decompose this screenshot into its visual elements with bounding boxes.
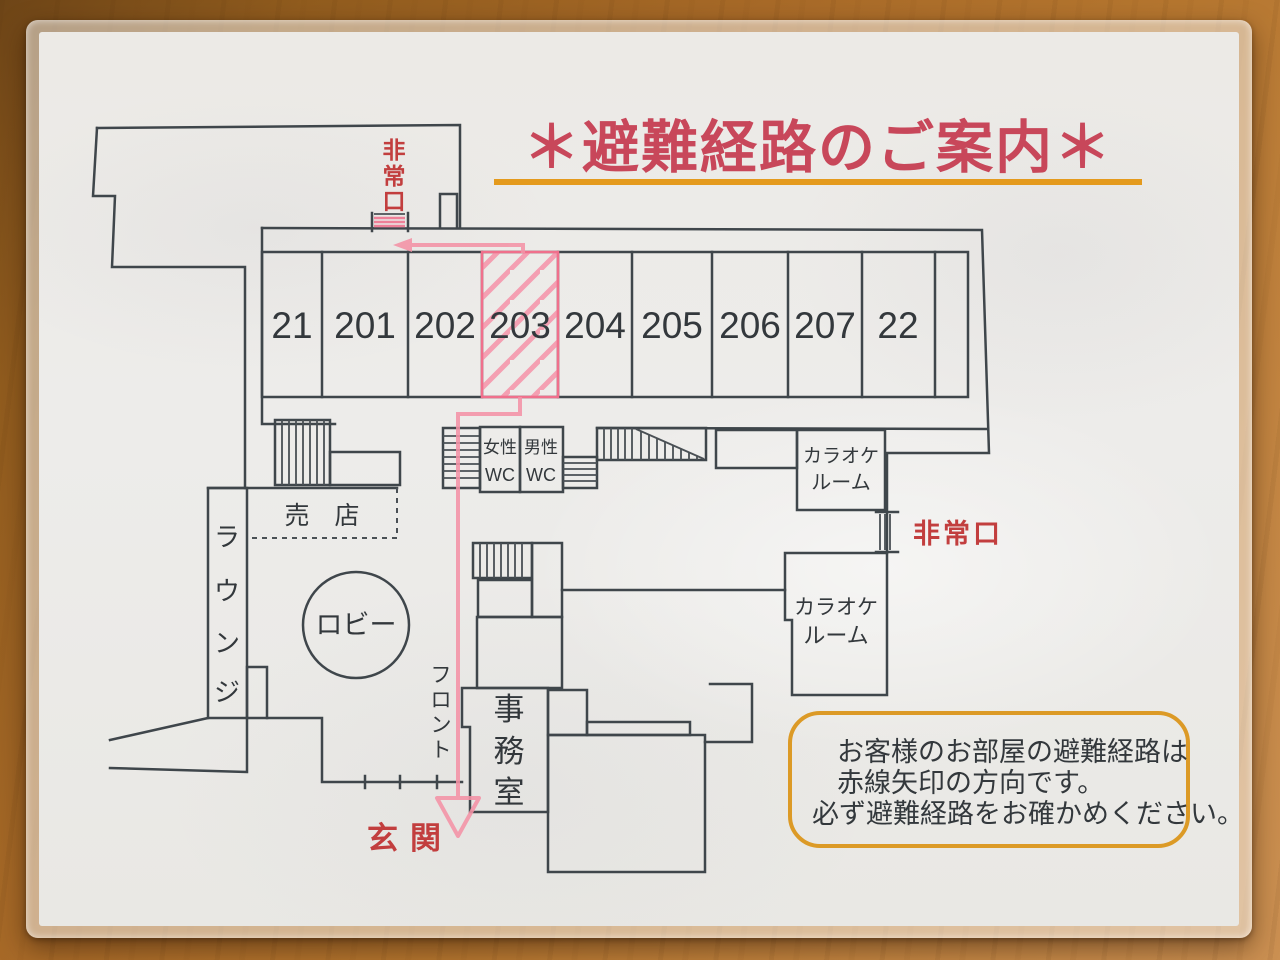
office-label-char: 事: [494, 692, 525, 727]
emergency-exit-door-top: 非 常 口: [372, 137, 408, 231]
entrance-label: 玄関: [367, 821, 453, 856]
karaoke-room-1-label2: ルーム: [811, 472, 870, 494]
page-title: ＊避難経路のご案内＊: [523, 116, 1113, 180]
front-label-char: ト: [431, 739, 452, 762]
small-room: [548, 690, 587, 735]
mens-wc-label2: WC: [526, 465, 556, 485]
front-label-char: フ: [431, 664, 452, 687]
lounge-label-char: ウ: [214, 576, 240, 606]
lounge-label-char: ジ: [214, 677, 240, 707]
counter: [587, 722, 690, 735]
route-arrow-left: [393, 238, 412, 252]
room-label: 21: [271, 305, 312, 346]
shop-label: 売 店: [284, 502, 359, 530]
office-label-char: 務: [494, 734, 525, 769]
lounge: ラ ウ ン ジ: [208, 488, 267, 718]
room-label: 201: [334, 305, 396, 346]
emergency-exit-top-char: 常: [383, 163, 406, 189]
emergency-exit-door-right: 非常口: [876, 512, 1003, 552]
stairs-right-of-wc: [563, 457, 597, 488]
mens-wc-label: 男性: [524, 438, 558, 457]
northwest-stairs: [275, 420, 400, 485]
karaoke-room-2-label: カラオケ: [794, 596, 878, 619]
front-label-char: ン: [431, 714, 452, 737]
room-label: 207: [794, 305, 856, 346]
emergency-exit-top-char: 口: [383, 188, 406, 214]
center-service-block: [473, 543, 562, 688]
east-staircase: [597, 428, 706, 460]
room-label: 206: [719, 305, 781, 346]
emergency-exit-top-char: 非: [383, 137, 406, 163]
note-line: 赤線矢印の方向です。: [837, 768, 1104, 798]
lobby: ロビー: [303, 572, 409, 678]
note-box: お客様のお部屋の避難経路は 赤線矢印の方向です。 必ず避難経路をお確かめください…: [790, 713, 1244, 846]
shop: 売 店: [247, 488, 397, 538]
womens-wc-label: 女性: [483, 438, 517, 457]
lounge-label-char: ン: [214, 628, 240, 658]
womens-wc-label2: WC: [485, 465, 515, 485]
note-line: 必ず避難経路をお確かめください。: [812, 799, 1244, 829]
office: 事 務 室: [494, 692, 525, 810]
front-label-char: ロ: [431, 689, 452, 712]
room-label: 203: [489, 305, 551, 346]
lobby-label: ロビー: [316, 610, 397, 640]
photo-of-evacuation-map: ＊避難経路のご案内＊: [0, 0, 1280, 960]
evacuation-floor-plan: ＊避難経路のご案内＊: [0, 0, 1280, 960]
lounge-label-char: ラ: [214, 522, 240, 552]
stairs-left-of-wc: [443, 428, 480, 488]
room-label: 22: [877, 305, 918, 346]
room-label: 204: [564, 305, 626, 346]
title-underline: [494, 179, 1142, 185]
note-line: お客様のお部屋の避難経路は: [837, 737, 1188, 767]
wc-rooms: 女性 WC 男性 WC: [480, 427, 563, 492]
karaoke-room-2: カラオケ ルーム: [794, 596, 878, 648]
karaoke-room-2-label2: ルーム: [803, 623, 868, 648]
karaoke-room-1-label: カラオケ: [803, 446, 879, 467]
emergency-exit-right-label: 非常口: [913, 519, 1003, 549]
room-number-labels: 21 201 202 203 204 205 206 207 22: [271, 305, 918, 346]
room-label: 202: [414, 305, 476, 346]
front-desk: フ ロ ン ト: [431, 664, 452, 762]
office-label-char: 室: [494, 775, 525, 810]
karaoke-room-1: カラオケ ルーム: [797, 430, 885, 510]
room-label: 205: [641, 305, 703, 346]
unlabeled-room: [716, 430, 797, 468]
